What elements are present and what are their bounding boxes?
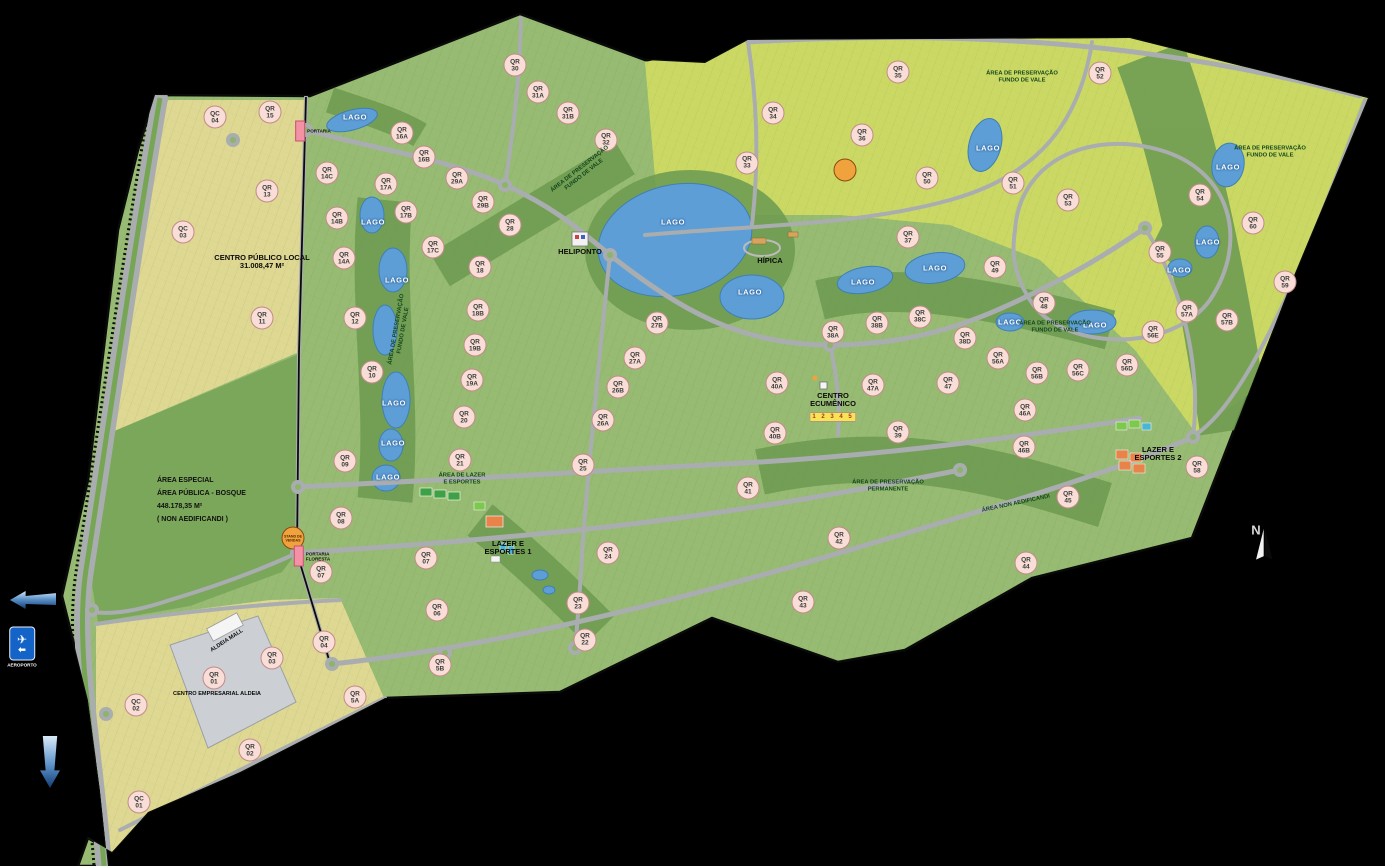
quadra-label: QR 47 <box>937 372 960 395</box>
quadra-label: QR 29A <box>446 167 469 190</box>
quadra-label: QR 43 <box>792 591 815 614</box>
place-label: LAZER E ESPORTES 2 <box>1134 446 1181 462</box>
quadra-label: QR 13 <box>256 180 279 203</box>
quadra-label: QR 50 <box>915 167 938 190</box>
place-label: HÍPICA <box>757 257 782 265</box>
quadra-label: QR 60 <box>1242 212 1265 235</box>
quadra-label: QR 14A <box>333 247 356 270</box>
quadra-label: QR 30 <box>504 54 527 77</box>
quadra-label: QR 17B <box>395 201 418 224</box>
area-label: ÁREA DE PRESERVAÇÃO PERMANENTE <box>852 479 924 492</box>
poi-marker <box>834 159 857 182</box>
quadra-label: QR 46A <box>1014 399 1037 422</box>
area-label: ÁREA DE PRESERVAÇÃO FUNDO DE VALE <box>550 145 615 200</box>
quadra-label: QR 38C <box>909 305 932 328</box>
quadra-label: QR 26A <box>592 409 615 432</box>
quadra-label: QR 35 <box>887 61 910 84</box>
lake-label: LAGO <box>738 288 762 297</box>
quadra-label: QR 52 <box>1089 62 1112 85</box>
quadra-label: QC 01 <box>128 791 151 814</box>
quadra-label: QR 04 <box>313 631 336 654</box>
place-label: LAZER E ESPORTES 1 <box>484 540 531 556</box>
lake-label: LAGO <box>1167 266 1191 275</box>
quadra-label: QR 49 <box>984 256 1007 279</box>
quadra-label: QR 19B <box>464 334 487 357</box>
quadra-label: QR 14C <box>315 162 338 185</box>
quadra-label: QR 38A <box>822 321 845 344</box>
quadra-label: QR 5A <box>344 686 367 709</box>
quadra-label: QR 56A <box>987 347 1010 370</box>
quadra-label: QR 17A <box>375 173 398 196</box>
lake-label: LAGO <box>382 399 406 408</box>
gate-pin-icon <box>295 121 305 142</box>
lake-label: LAGO <box>661 218 685 227</box>
quadra-label: QR 18 <box>469 256 492 279</box>
lake-label: LAGO <box>851 278 875 287</box>
quadra-label: QR 02 <box>239 739 262 762</box>
place-label: ALDEIA MALL <box>209 628 244 654</box>
quadra-label: QR 20 <box>453 406 476 429</box>
quadra-label: QR 19A <box>461 369 484 392</box>
quadra-label: QR 01 <box>203 667 226 690</box>
label-layer: QC 04QR 15QR 16AQR 16BQR 14CQR 17AQR 13Q… <box>0 0 1385 866</box>
quadra-label: QR 18B <box>467 299 490 322</box>
quadra-label: QR 29B <box>472 191 495 214</box>
quadra-label: QR 44 <box>1015 552 1038 575</box>
quadra-label: QR 53 <box>1057 189 1080 212</box>
quadra-label: QR 21 <box>449 449 472 472</box>
quadra-label: QR 58 <box>1186 456 1209 479</box>
quadra-label: QR 36 <box>851 124 874 147</box>
direction-arrow-down <box>40 736 60 788</box>
area-label: ÁREA DE LAZER E ESPORTES <box>439 472 486 485</box>
quadra-label: QR 5B <box>429 654 452 677</box>
quadra-label: QR 15 <box>259 101 282 124</box>
direction-arrow-left <box>10 591 56 609</box>
quadra-label: QR 54 <box>1189 184 1212 207</box>
airport-sign-board: ✈⬅ <box>9 627 35 661</box>
compass-north: N <box>1251 523 1260 538</box>
quadra-label: QR 41 <box>737 477 760 500</box>
lake-label: LAGO <box>923 264 947 273</box>
quadra-label: QR 56D <box>1116 354 1139 377</box>
quadra-label: QR 08 <box>330 507 353 530</box>
quadra-label: QR 51 <box>1002 172 1025 195</box>
place-label: CENTRO ECUMÊNICO <box>810 392 856 408</box>
place-label: CENTRO EMPRESARIAL ALDEIA <box>173 691 261 697</box>
quadra-label: QR 56E <box>1142 321 1165 344</box>
airport-sign-caption: AEROPORTO <box>7 663 37 668</box>
lake-label: LAGO <box>381 439 405 448</box>
lake-label: LAGO <box>376 473 400 482</box>
gate-label: PORTARIA <box>307 129 331 134</box>
area-label: ÁREA NON AEDIFICANDI <box>981 494 1050 515</box>
quadra-label: QR 45 <box>1057 486 1080 509</box>
gate-marker: PORTARIA FLORESTA <box>294 546 330 567</box>
quadra-label: QR 48 <box>1033 292 1056 315</box>
quadra-label: QR 12 <box>344 307 367 330</box>
quadra-label: QR 40A <box>766 372 789 395</box>
quadra-label: QR 31B <box>557 102 580 125</box>
quadra-label: QR 38B <box>866 311 889 334</box>
area-label: ÁREA DE PRESERVAÇÃO FUNDO DE VALE <box>387 294 412 367</box>
quadra-label: QR 38D <box>953 327 976 350</box>
quadra-label: QR 23 <box>567 592 590 615</box>
quadra-label: QR 17C <box>422 236 445 259</box>
area-info-block: ÁREA ESPECIAL ÁREA PÚBLICA - BOSQUE 448.… <box>157 474 246 526</box>
quadra-label: QC 03 <box>172 221 195 244</box>
quadra-label: QR 37 <box>897 226 920 249</box>
lot-number-strip: 1 2 3 4 5 <box>809 412 856 422</box>
lake-label: LAGO <box>1216 163 1240 172</box>
quadra-label: QR 56C <box>1067 359 1090 382</box>
quadra-label: QR 09 <box>334 450 357 473</box>
quadra-label: QR 57B <box>1216 308 1239 331</box>
quadra-label: QR 46B <box>1013 436 1036 459</box>
quadra-label: QR 06 <box>426 599 449 622</box>
lake-label: LAGO <box>976 144 1000 153</box>
quadra-label: QR 16A <box>391 122 414 145</box>
area-label: ÁREA DE PRESERVAÇÃO FUNDO DE VALE <box>1019 320 1091 333</box>
quadra-label: QR 10 <box>361 361 384 384</box>
quadra-label: QR 56B <box>1026 362 1049 385</box>
quadra-label: QR 14B <box>326 207 349 230</box>
quadra-label: QR 24 <box>597 542 620 565</box>
quadra-label: QR 27B <box>646 311 669 334</box>
left-arrow-icon: ⬅ <box>18 645 26 654</box>
lake-label: LAGO <box>1196 238 1220 247</box>
quadra-label: QR 55 <box>1148 241 1171 264</box>
quadra-label: QR 16B <box>413 145 436 168</box>
quadra-label: QR 59 <box>1274 271 1297 294</box>
quadra-label: QR 22 <box>574 628 597 651</box>
quadra-label: QR 33 <box>736 151 759 174</box>
place-label: CENTRO PÚBLICO LOCAL 31.008,47 M² <box>214 254 309 270</box>
quadra-label: QR 47A <box>862 374 885 397</box>
area-label: ÁREA DE PRESERVAÇÃO FUNDO DE VALE <box>1234 145 1306 158</box>
quadra-label: QR 26B <box>607 376 630 399</box>
quadra-label: QC 02 <box>125 694 148 717</box>
quadra-label: QC 04 <box>204 106 227 129</box>
quadra-label: QR 31A <box>527 81 550 104</box>
quadra-label: QR 11 <box>251 307 274 330</box>
compass-needle-icon <box>1251 523 1277 563</box>
area-label: ÁREA DE PRESERVAÇÃO FUNDO DE VALE <box>986 70 1058 83</box>
quadra-label: QR 34 <box>762 102 785 125</box>
airport-sign: ✈⬅AEROPORTO <box>7 627 37 668</box>
quadra-label: QR 40B <box>764 422 787 445</box>
airplane-icon: ✈ <box>17 633 27 645</box>
quadra-label: QR 07 <box>415 547 438 570</box>
quadra-label: QR 03 <box>261 647 284 670</box>
lake-label: LAGO <box>361 218 385 227</box>
quadra-label: QR 25 <box>572 454 595 477</box>
quadra-label: QR 27A <box>624 347 647 370</box>
quadra-label: QR 57A <box>1176 300 1199 323</box>
lake-label: LAGO <box>385 276 409 285</box>
quadra-label: QR 28 <box>499 214 522 237</box>
gate-pin-icon <box>294 546 304 567</box>
gate-marker: PORTARIA <box>295 121 331 142</box>
lake-label: LAGO <box>343 113 367 122</box>
place-label: HELIPONTO <box>558 248 602 256</box>
gate-label: PORTARIA FLORESTA <box>306 551 330 561</box>
quadra-label: QR 39 <box>887 421 910 444</box>
quadra-label: QR 42 <box>828 527 851 550</box>
map-stage: QC 04QR 15QR 16AQR 16BQR 14CQR 17AQR 13Q… <box>0 0 1385 866</box>
